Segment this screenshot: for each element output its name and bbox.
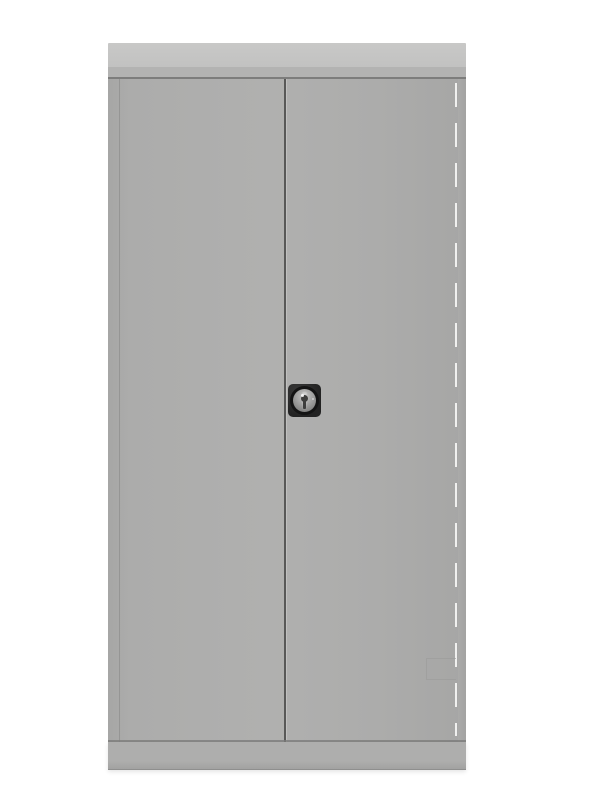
product-photo [0,0,600,800]
cabinet-top-panel [108,43,466,67]
door-right-edge-highlight [455,83,457,736]
keyhole-slot-icon [303,400,306,409]
door-left-edge-line [119,79,120,742]
door-edge-recess [426,658,456,680]
cabinet-lock [288,384,321,417]
cabinet-top-lip [108,67,466,77]
cabinet [108,43,466,770]
cabinet-doors [108,77,466,742]
lock-highlight-dot [312,398,314,400]
cabinet-right-side-panel [458,79,466,742]
cabinet-base-plinth [108,742,466,770]
door-center-gap [284,79,287,742]
lock-highlight-speck [301,394,304,397]
